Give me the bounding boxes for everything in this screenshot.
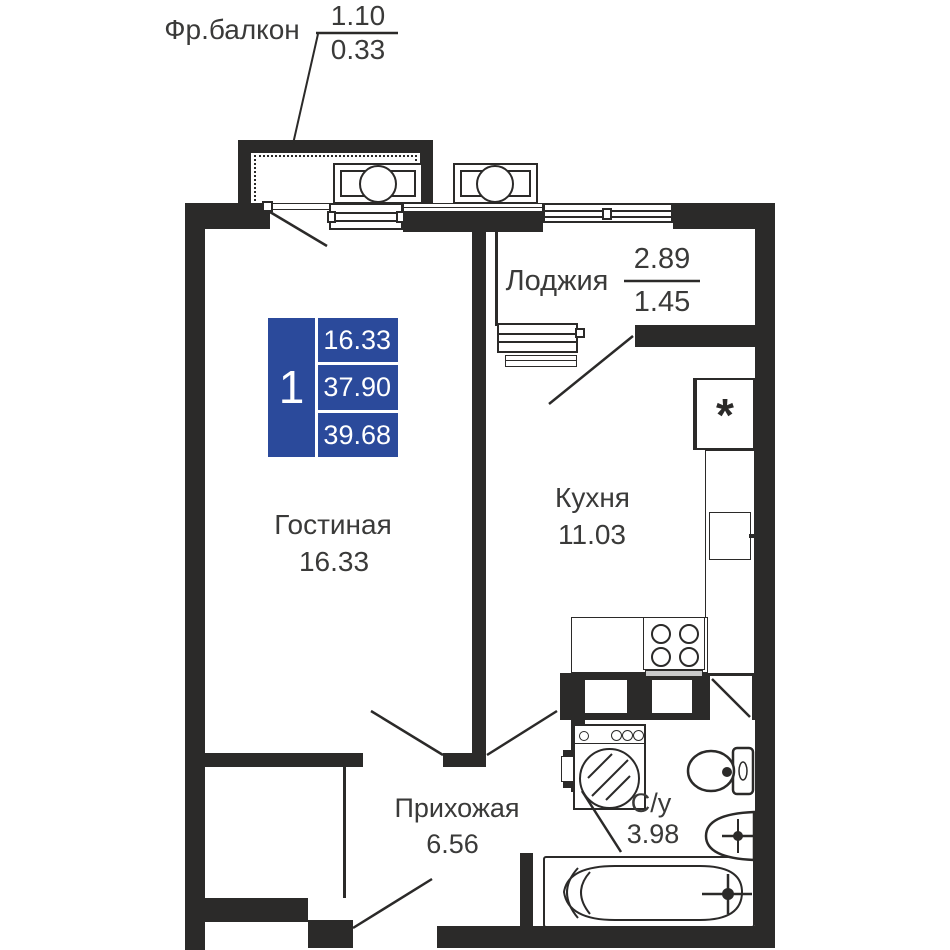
closet-partition [343,767,346,898]
wall [238,140,251,208]
balcony-leader-line [293,34,318,144]
loggia-area-bottom: 1.45 [622,285,702,319]
wall [443,753,486,767]
wall [205,753,363,767]
kitchen-counter [705,450,755,674]
apartment-legend: 1 16.33 37.90 39.68 [268,318,398,457]
hallway-area: 6.56 [395,829,510,859]
kitchen-door-swing [487,711,557,755]
wall [755,203,775,948]
fridge-icon: * [693,378,755,450]
bathroom-door-opening [710,676,752,720]
legend-living-area: 16.33 [318,318,398,362]
floor-plan: * [0,0,950,950]
kitchen-label: Кухня [530,482,655,514]
loggia-area-top: 2.89 [622,242,702,276]
bathtub-icon [543,856,755,928]
window-living [329,203,403,230]
stove-panel [645,670,703,677]
wall [472,222,486,753]
balcony-door-swing [270,212,327,246]
wall [437,926,775,948]
wall [520,853,533,930]
bathroom-area: 3.98 [610,819,696,849]
legend-rooms-count: 1 [268,318,315,457]
toilet-icon [688,748,753,794]
window-loggia-top [543,203,673,223]
wall [185,203,205,950]
loggia-label: Лоджия [498,264,616,298]
hallway-label: Прихожая [389,793,525,823]
fridge-symbol: * [697,388,753,442]
basin-icon [706,812,757,860]
living-room-area: 16.33 [274,546,394,578]
living-door-swing [371,711,443,755]
living-room-label: Гостиная [263,509,403,541]
stove-icon [643,617,705,670]
radiator [505,355,577,367]
wall [635,325,775,347]
balcony-label: Фр.балкон [158,13,306,47]
door-frame [262,201,273,212]
legend-apartment-area: 37.90 [318,365,398,410]
wall [238,140,433,153]
window-kitchen-loggia [497,323,578,353]
wall [185,898,308,922]
kitchen-sink-icon [709,512,751,560]
balcony-area-bottom: 0.33 [316,35,400,65]
ac-unit-icon [333,163,423,204]
bathroom-label: С/у [618,787,684,819]
balcony-threshold [267,203,333,210]
entry-door-swing [353,879,432,928]
kitchen-area: 11.03 [532,519,652,551]
legend-total-area: 39.68 [318,413,398,457]
ac-unit-icon [453,163,538,204]
door-frame [575,328,585,338]
wall [308,920,353,948]
vent-shaft [652,680,692,713]
balcony-area-top: 1.10 [316,1,400,31]
sink-handle [749,534,758,538]
vent-shaft [582,680,627,713]
